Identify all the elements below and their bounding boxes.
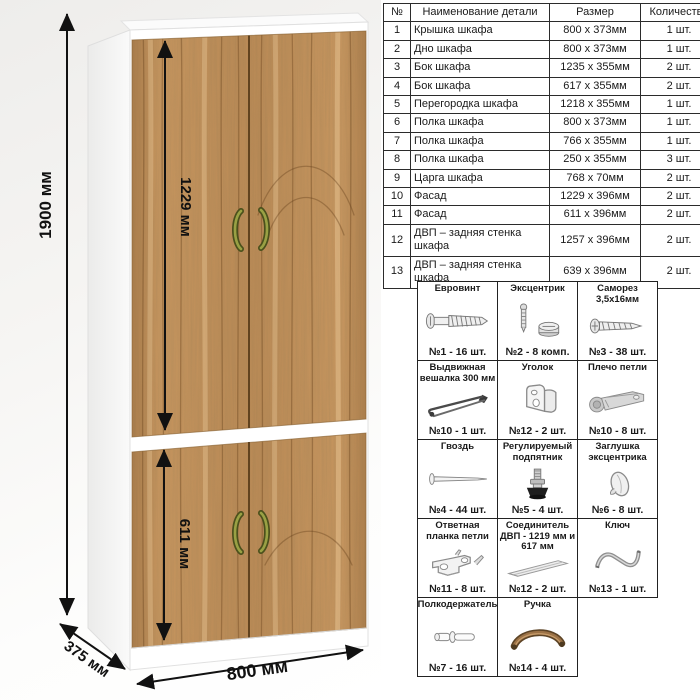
upper-door-dimension-label: 1229 мм: [177, 177, 194, 237]
corner-bracket-icon: [507, 374, 569, 426]
table-row: 2Дно шкафа800 x 373мм1 шт.: [384, 40, 700, 58]
hardware-item-nail: Гвоздь №4 - 44 шт.: [417, 439, 498, 519]
hardware-item-key: Ключ №13 - 1 шт.: [577, 518, 658, 598]
parts-table-header: № Наименование детали Размер Количество: [384, 4, 700, 22]
wardrobe-svg: 1900 мм 1229 мм 611 мм 800 мм 375 мм: [0, 0, 381, 700]
table-row: 5Перегородка шкафа1218 x 355мм1 шт.: [384, 96, 700, 114]
hardware-item-foot: Регулируемый подпятник №5 - 4 шт.: [497, 439, 578, 519]
hardware-item-bracket: Уголок №12 - 2 шт.: [497, 360, 578, 440]
hardware-item-eccentric: Эксцентрик №2 - 8 комп.: [497, 281, 578, 361]
table-row: 12ДВП – задняя стенка шкафа1257 x 396мм2…: [384, 224, 700, 256]
height-dimension-label: 1900 мм: [36, 171, 55, 239]
col-header-name: Наименование детали: [411, 4, 550, 22]
col-header-size: Размер: [550, 4, 641, 22]
hardware-item-shelf-pin: Полкодержатель №7 - 16 шт.: [417, 597, 498, 677]
wardrobe-body: [88, 13, 370, 672]
pullout-hanger-icon: [424, 384, 492, 425]
wardrobe-side-panel: [88, 30, 130, 670]
handle-icon: [505, 611, 571, 663]
hinge-plate-icon: [427, 542, 489, 583]
hardware-item-hdf-connector: Соединитель ДВП - 1219 мм и 617 мм №12 -…: [497, 518, 578, 598]
table-row: 7Полка шкафа766 x 355мм1 шт.: [384, 132, 700, 150]
hardware-item-hinge-plate: Ответная планка петли №11 - 8 шт.: [417, 518, 498, 598]
table-row: 11Фасад611 x 396мм2 шт.: [384, 206, 700, 224]
table-row: 8Полка шкафа250 x 355мм3 шт.: [384, 151, 700, 169]
table-row: 6Полка шкафа800 x 373мм1 шт.: [384, 114, 700, 132]
hardware-item-eurovint: Евровинт №1 - 16 шт.: [417, 281, 498, 361]
euro-screw-icon: [425, 295, 491, 347]
hardware-item-cap: Заглушка эксцентрика №6 - 8 шт.: [577, 439, 658, 519]
hardware-item-screw: Саморез 3,5х16мм №3 - 38 шт.: [577, 281, 658, 361]
parts-table: № Наименование детали Размер Количество …: [383, 3, 700, 289]
hardware-item-handle: Ручка №14 - 4 шт.: [497, 597, 578, 677]
hardware-grid: Евровинт №1 - 16 шт. Эксцентрик: [417, 281, 657, 676]
lower-door-dimension-label: 611 мм: [176, 519, 193, 570]
hinge-arm-icon: [585, 374, 651, 426]
wardrobe-drawing: 1900 мм 1229 мм 611 мм 800 мм 375 мм: [0, 0, 381, 700]
shelf-pin-icon: [429, 611, 487, 663]
table-row: 1Крышка шкафа800 x 373мм1 шт.: [384, 22, 700, 40]
eccentric-cam-icon: [505, 295, 571, 347]
nail-icon: [425, 453, 491, 505]
hex-key-icon: [588, 532, 648, 584]
hardware-grid-empty-cell: [577, 597, 658, 677]
adjustable-foot-icon: [511, 463, 565, 504]
width-dimension-label: 800 мм: [225, 656, 289, 684]
table-row: 10Фасад1229 x 396мм2 шт.: [384, 188, 700, 206]
hardware-item-hinge: Плечо петли №10 - 8 шт.: [577, 360, 658, 440]
table-row: 9Царга шкафа768 x 70мм2 шт.: [384, 169, 700, 187]
assembly-sheet: { "drawing": { "height_label": "1900 мм"…: [0, 0, 700, 700]
table-row: 4Бок шкафа617 x 355мм2 шт.: [384, 77, 700, 95]
self-tapping-screw-icon: [587, 305, 649, 346]
table-row: 3Бок шкафа1235 x 355мм2 шт.: [384, 59, 700, 77]
col-header-qty: Количество: [641, 4, 700, 22]
col-header-num: №: [384, 4, 411, 22]
hdf-connector-icon: [505, 553, 571, 584]
hardware-item-hanger: Выдвижная вешалка 300 мм №10 - 1 шт.: [417, 360, 498, 440]
cam-cover-icon: [594, 463, 642, 504]
